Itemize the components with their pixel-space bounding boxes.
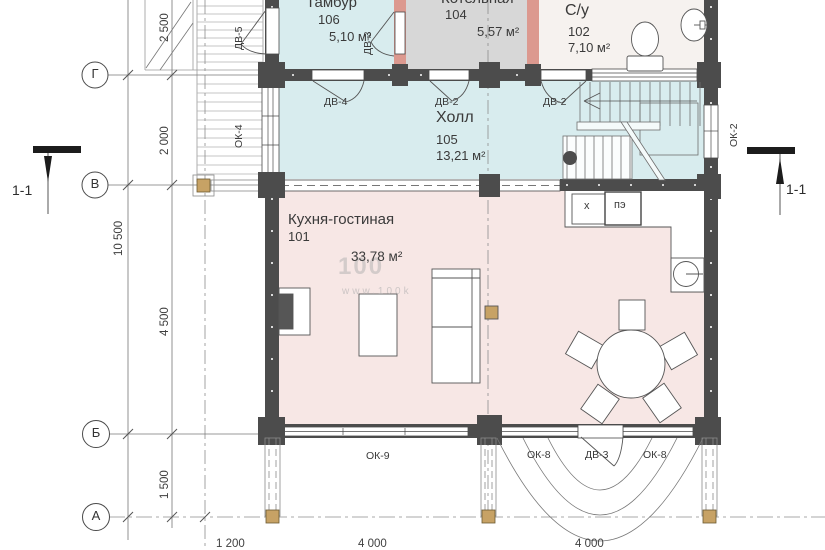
opening-dv2a [429, 70, 469, 80]
dim-1500: 1 500 [159, 470, 171, 499]
label-dv3-terrace: ДВ-3 [585, 450, 608, 461]
section-bar-left [33, 146, 81, 153]
room-su-area: 7,10 м² [568, 41, 610, 55]
room-hall-num: 105 [436, 133, 458, 147]
coffee-table [359, 294, 397, 356]
opening-dv4 [312, 70, 364, 80]
label-ok8b: ОК-8 [643, 450, 667, 461]
room-tambur-name: Тамбур [306, 0, 357, 11]
section-arrow-right [776, 158, 784, 184]
dim-10500: 10 500 [113, 221, 125, 256]
label-stove: пэ [614, 200, 626, 212]
label-ok9: ОК-9 [366, 451, 390, 462]
room-kotelnaya-area: 5,57 м² [477, 25, 519, 39]
label-fridge: х [584, 201, 590, 213]
opening-dv3-terrace [578, 425, 623, 438]
label-ok2: ОК-2 [729, 123, 740, 147]
axis-label-a: А [88, 509, 104, 523]
room-kitchen-num: 101 [288, 230, 310, 244]
room-su-num: 102 [568, 25, 590, 39]
deck-boards-lower [197, 84, 263, 174]
stair-newel-post [563, 151, 577, 165]
floor-plan: 100 www.100k Тамбур 106 5,10 м² Котельна… [0, 0, 825, 550]
room-tambur-num: 106 [318, 13, 340, 27]
room-kotelnaya-num: 104 [445, 8, 467, 22]
watermark-url: www.100k [342, 287, 412, 298]
axis-label-g: Г [87, 67, 103, 81]
stair-railing [577, 122, 660, 130]
deck-boards-upper [197, 6, 263, 62]
room-kitchen-name: Кухня-гостиная [288, 212, 394, 228]
opening-dv2b [541, 70, 586, 80]
label-ok4: ОК-4 [234, 124, 245, 148]
dim-2500: 2 500 [159, 13, 171, 42]
dim-1200: 1 200 [216, 538, 245, 550]
toilet-icon [632, 22, 659, 56]
sofa [432, 269, 480, 383]
section-label-right: 1-1 [786, 182, 806, 197]
dim-4500: 4 500 [159, 307, 171, 336]
label-dv5: ДВ-5 [234, 27, 245, 50]
label-dv2b: ДВ-2 [543, 97, 566, 108]
label-ok8a: ОК-8 [527, 450, 551, 461]
room-hall-area: 13,21 м² [436, 149, 485, 163]
opening-dv5 [266, 8, 279, 54]
wall-kotelnaya-su [527, 0, 539, 69]
room-kitchen-area: 33,78 м² [351, 250, 402, 264]
window-ok4 [262, 86, 279, 174]
dining-table [597, 330, 665, 398]
toilet-tank [627, 56, 663, 71]
dim-4000-b: 4 000 [575, 538, 604, 550]
porch-beam [211, 180, 265, 191]
section-bar-right [747, 147, 795, 154]
opening-dv3-tambur [395, 12, 405, 54]
label-dv3-tambur: ДВ-3 [363, 32, 374, 55]
room-hall-name: Холл [436, 110, 474, 127]
section-label-left: 1-1 [12, 183, 32, 198]
room-kotelnaya-name: Котельная [441, 0, 514, 7]
room-su-floor [539, 0, 704, 69]
axis-label-v: В [87, 177, 103, 191]
tv-screen [279, 294, 293, 329]
label-dv2a: ДВ-2 [435, 97, 458, 108]
timber-post-marker [485, 306, 498, 319]
dim-2000: 2 000 [159, 126, 171, 155]
dim-4000-a: 4 000 [358, 538, 387, 550]
floor-plan-drawing [0, 0, 825, 550]
chair [619, 300, 645, 330]
axis-bubbles [82, 62, 110, 531]
label-dv4: ДВ-4 [324, 97, 347, 108]
axis-label-b: Б [88, 426, 104, 440]
section-arrow-left [44, 156, 52, 182]
room-su-name: С/у [565, 3, 589, 20]
